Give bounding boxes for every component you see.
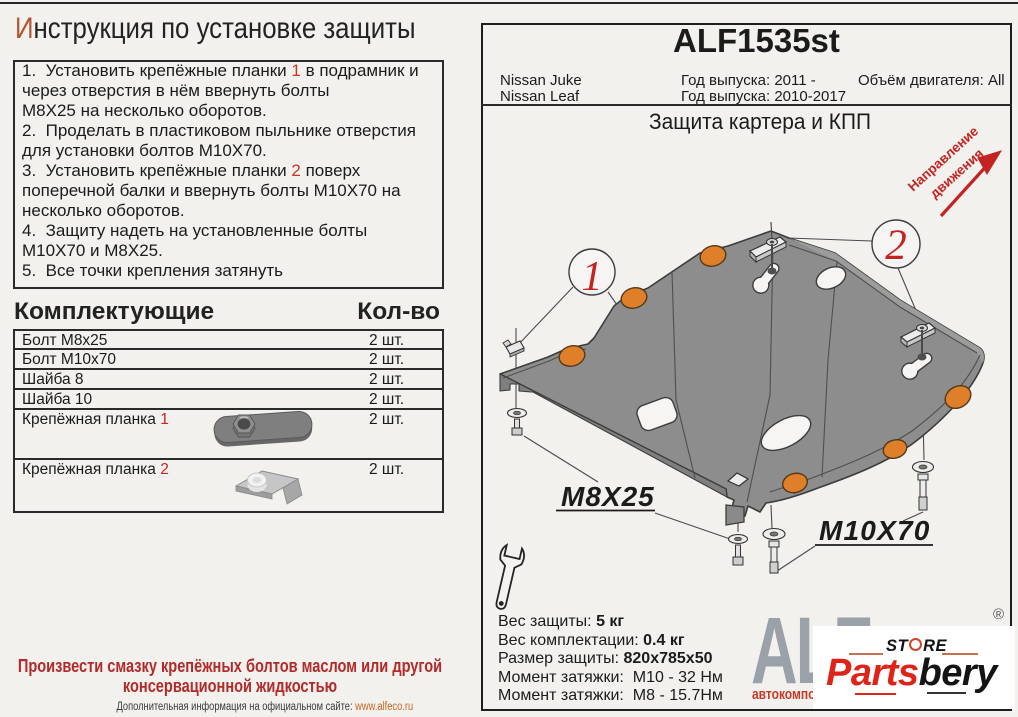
svg-text:1: 1	[582, 254, 603, 300]
svg-text:M10X70: M10X70	[819, 515, 931, 546]
svg-text:M8X25: M8X25	[561, 481, 655, 512]
svg-text:2: 2	[885, 222, 907, 269]
